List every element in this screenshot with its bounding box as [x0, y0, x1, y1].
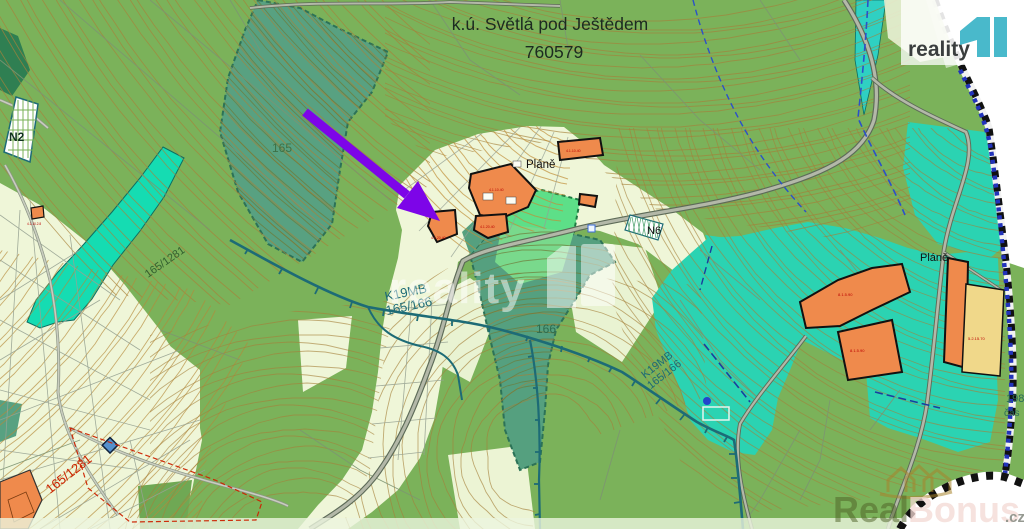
svg-text:4.1.10.40: 4.1.10.40 — [566, 149, 581, 153]
svg-text:4.1.10.40: 4.1.10.40 — [489, 188, 504, 192]
svg-text:.cz: .cz — [1005, 509, 1024, 526]
svg-text:4.1.20.40: 4.1.20.40 — [431, 236, 446, 240]
svg-text:198: 198 — [1006, 393, 1024, 405]
svg-text:166: 166 — [536, 322, 556, 336]
svg-text:k.ú. Světlá pod Ještědem: k.ú. Světlá pod Ještědem — [452, 14, 649, 34]
svg-text:5.2.15.70: 5.2.15.70 — [968, 336, 985, 341]
svg-text:165: 165 — [272, 141, 292, 155]
svg-text:N6: N6 — [647, 225, 661, 237]
svg-text:760579: 760579 — [525, 42, 583, 62]
svg-text:8.1.5.90: 8.1.5.90 — [838, 292, 853, 297]
svg-text:4.1.10.2.8: 4.1.10.2.8 — [27, 222, 41, 226]
svg-text:N2: N2 — [9, 130, 25, 144]
svg-text:8.1.5.90: 8.1.5.90 — [850, 348, 865, 353]
svg-text:Pláně: Pláně — [920, 252, 948, 264]
svg-text:Real: Real — [833, 489, 909, 529]
svg-text:Bonus: Bonus — [908, 489, 1020, 529]
svg-text:4.1.20.40: 4.1.20.40 — [480, 225, 495, 229]
svg-text:reality: reality — [389, 264, 526, 313]
svg-text:Pláně: Pláně — [526, 159, 555, 171]
svg-text:čás: čás — [1004, 408, 1020, 419]
